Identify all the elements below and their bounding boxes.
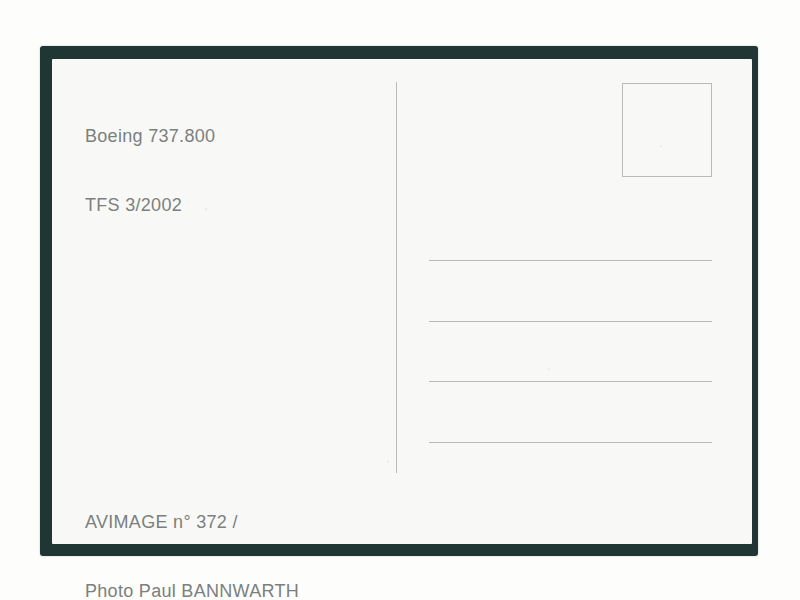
postcard-face: Boeing 737.800 TFS 3/2002 AVIMAGE n° 372…: [52, 59, 752, 544]
photo-caption: Boeing 737.800 TFS 3/2002: [85, 79, 215, 263]
address-line: [429, 260, 712, 261]
address-lines: [429, 59, 712, 544]
caption-reference: TFS 3/2002: [85, 194, 215, 217]
postcard-back: Boeing 737.800 TFS 3/2002 AVIMAGE n° 372…: [40, 46, 758, 556]
address-line: [429, 321, 712, 322]
publisher-credit: AVIMAGE n° 372 / Photo Paul BANNWARTH: [85, 465, 299, 600]
credit-photographer: Photo Paul BANNWARTH: [85, 580, 299, 600]
credit-publisher-number: AVIMAGE n° 372 /: [85, 511, 299, 534]
scan-background: Boeing 737.800 TFS 3/2002 AVIMAGE n° 372…: [0, 0, 800, 600]
address-line: [429, 381, 712, 382]
caption-aircraft-type: Boeing 737.800: [85, 125, 215, 148]
address-line: [429, 442, 712, 443]
center-divider-line: [396, 82, 397, 473]
